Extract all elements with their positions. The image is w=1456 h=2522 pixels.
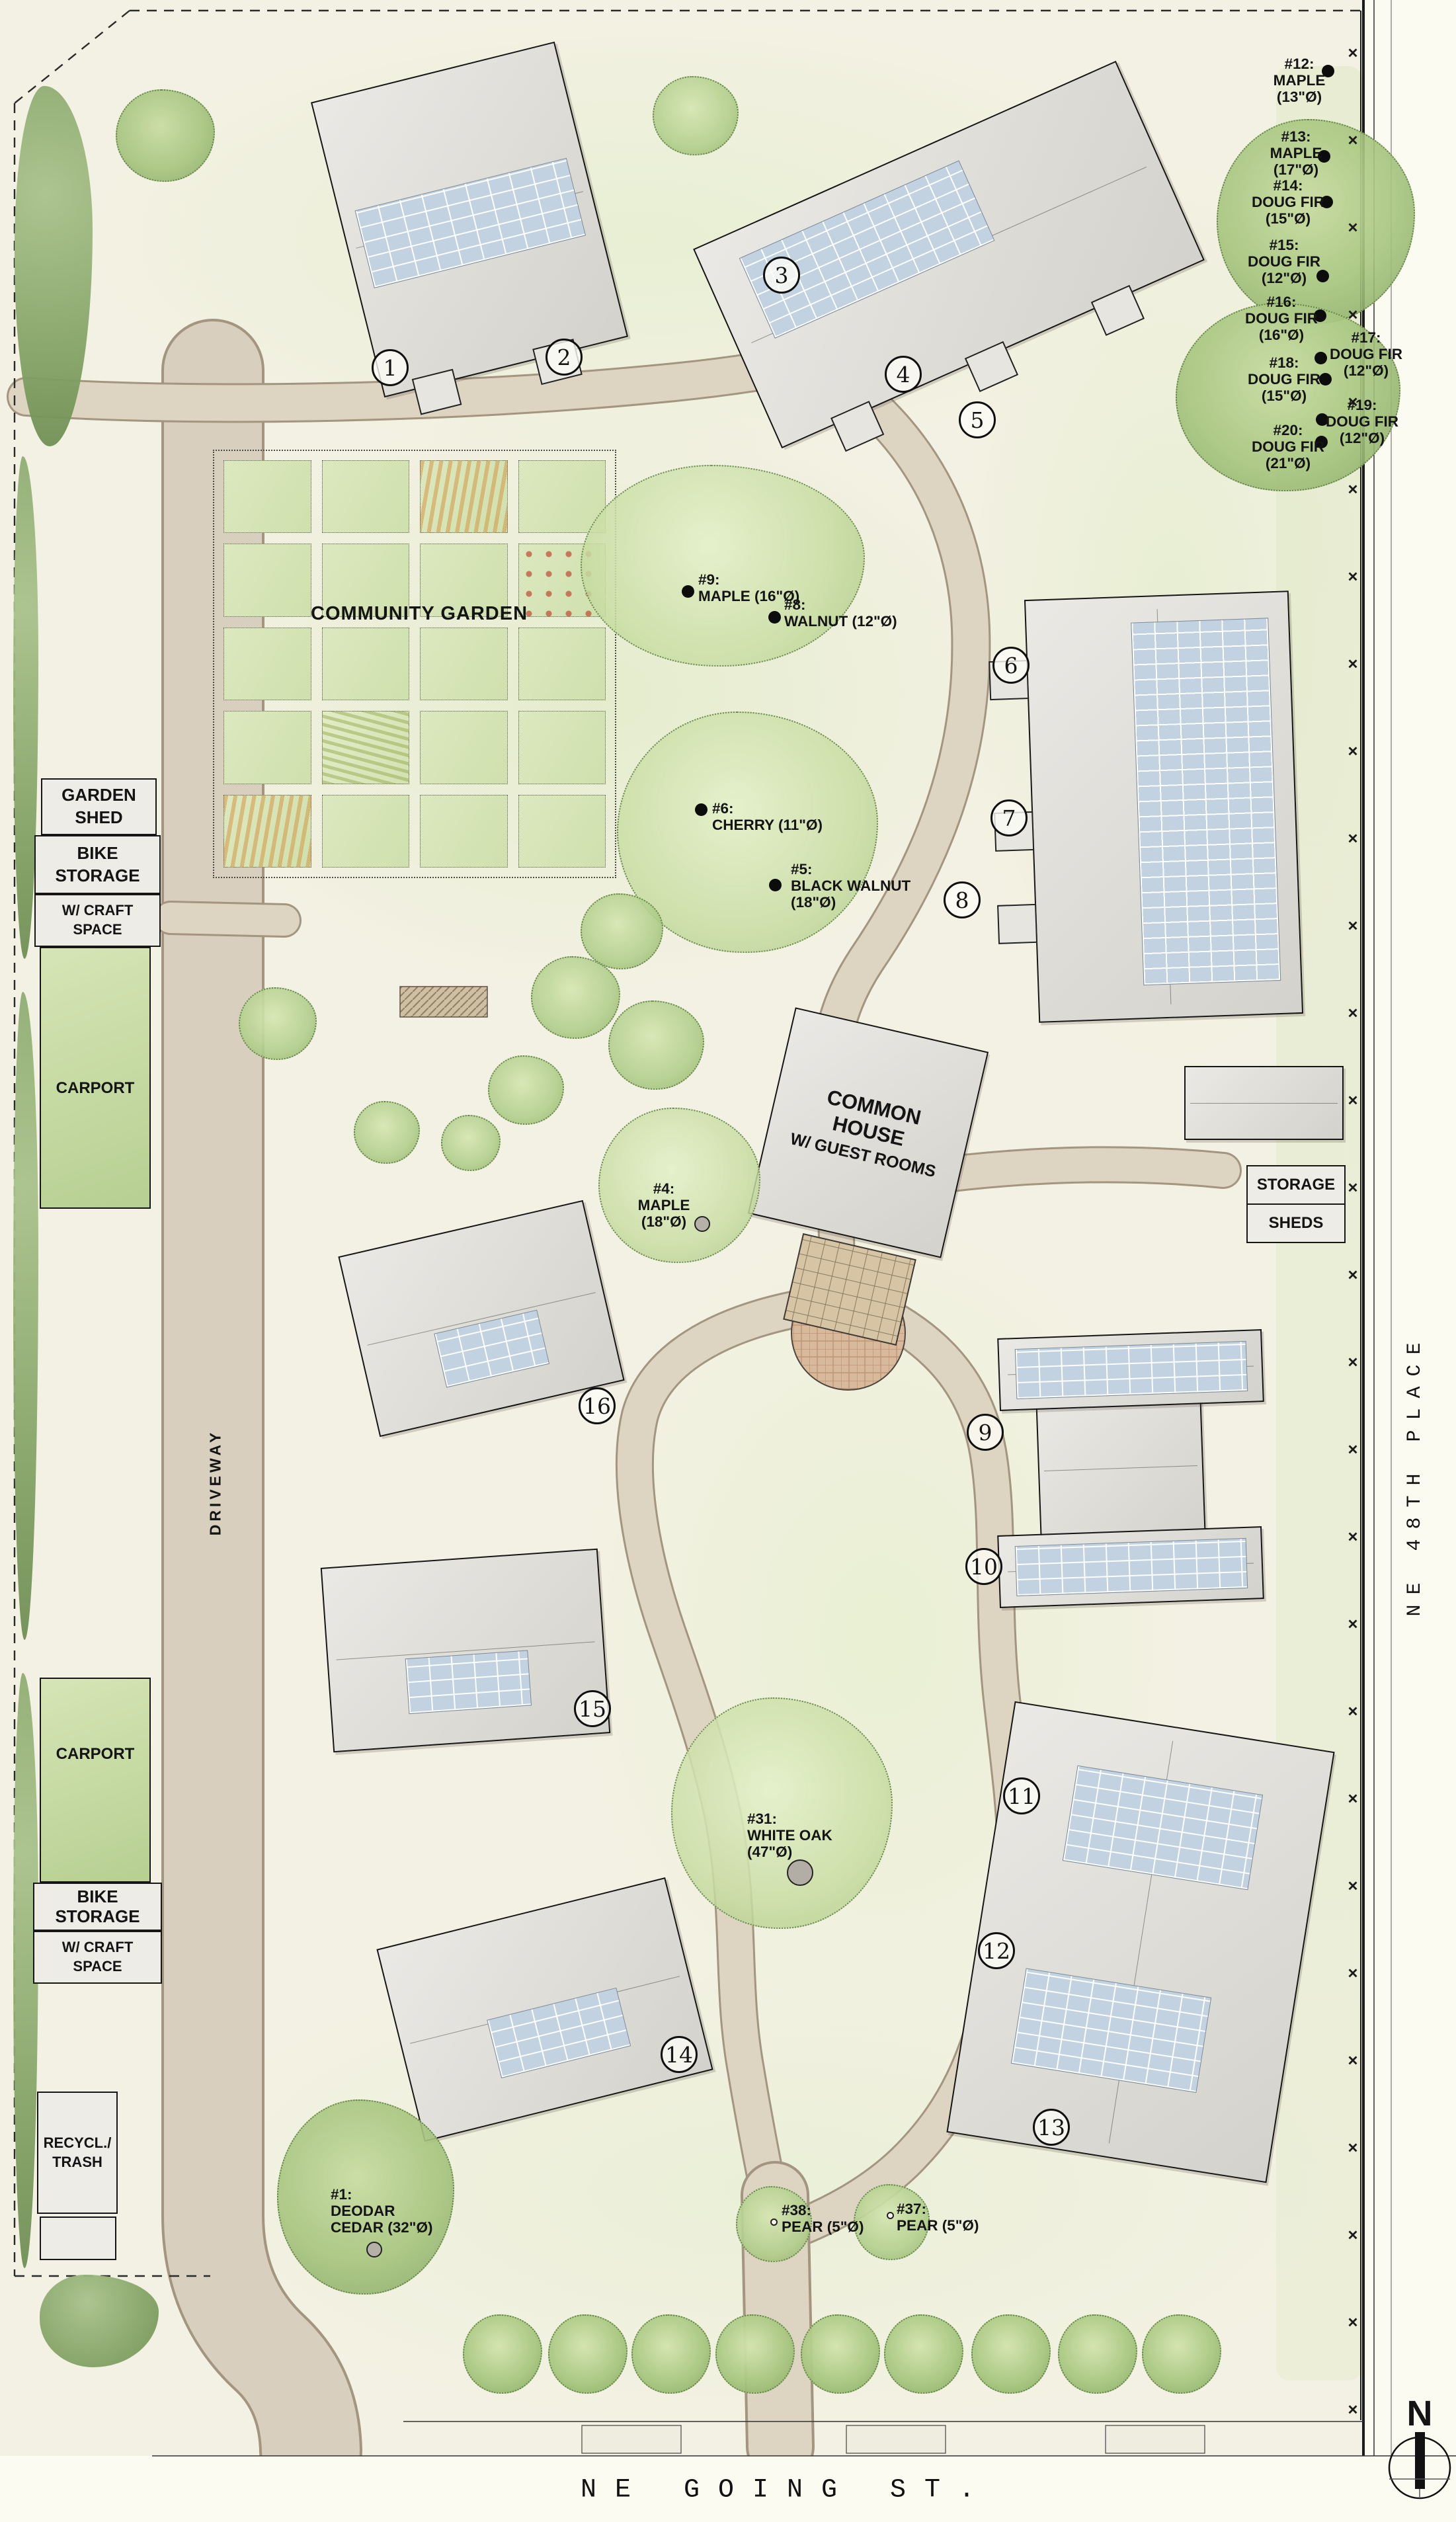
tree-label-6: #6:CHERRY (11"Ø) xyxy=(712,800,823,833)
tree-trunk-marker xyxy=(770,2218,778,2226)
tree-label-line: DOUG FIR xyxy=(1252,438,1324,455)
unit-1-badge: 1 xyxy=(372,349,409,386)
bike-storage-label: BIKE xyxy=(77,1887,118,1907)
bike-storage-label: BIKE xyxy=(77,842,118,865)
garden-plot xyxy=(518,628,606,700)
tree-label-line: PEAR (5"Ø) xyxy=(782,2218,864,2235)
solar-panels xyxy=(354,158,586,288)
tree-label-line: DOUG FIR xyxy=(1248,371,1320,387)
tree-label-line: #18: xyxy=(1248,354,1320,371)
solar-panels xyxy=(1015,1538,1248,1596)
tree-label-31: #31:WHITE OAK(47"Ø) xyxy=(747,1810,832,1861)
solar-panels xyxy=(434,1309,549,1388)
craft-space-lower: W/ CRAFT SPACE xyxy=(33,1931,162,1984)
garden-plot xyxy=(322,628,410,700)
tree-canopy xyxy=(354,1101,420,1164)
bike-storage-label: STORAGE xyxy=(55,865,140,887)
tree-label-line: MAPLE xyxy=(638,1197,690,1213)
fence-x-mark: × xyxy=(1348,2225,1357,2246)
fence-x-mark: × xyxy=(1348,1352,1357,1373)
building-unit-15 xyxy=(321,1549,611,1753)
unit-11-badge: 11 xyxy=(1003,1777,1040,1814)
garden-plot xyxy=(322,460,410,533)
garden-plot xyxy=(518,711,606,784)
tree-label-8: #8:WALNUT (12"Ø) xyxy=(784,596,897,630)
fence-x-mark: × xyxy=(1348,305,1357,325)
carport-label: CARPORT xyxy=(41,1078,149,1098)
common-house-label: COMMON HOUSE W/ GUEST ROOMS xyxy=(765,1074,972,1187)
tree-label-line: (12"Ø) xyxy=(1326,430,1398,446)
tree-label-line: (15"Ø) xyxy=(1252,210,1324,227)
bike-storage-lower: BIKE STORAGE xyxy=(33,1883,162,1931)
tree-trunk-marker xyxy=(682,585,694,598)
fence-x-mark: × xyxy=(1348,2051,1357,2071)
unit-4-badge: 4 xyxy=(885,356,922,393)
tree-label-line: #13: xyxy=(1270,128,1322,145)
tree-label-line: #14: xyxy=(1252,177,1324,194)
tree-canopy xyxy=(488,1055,564,1125)
tree-label-line: #17: xyxy=(1330,329,1402,346)
garden-plot xyxy=(223,544,311,616)
recycling-label: TRASH xyxy=(52,2153,102,2172)
storage-sheds: STORAGE SHEDS xyxy=(1246,1165,1346,1243)
garden-plot xyxy=(420,460,508,533)
driveway-label: DRIVEWAY xyxy=(207,1430,225,1536)
tree-label-line: MAPLE xyxy=(1274,72,1326,89)
garden-shed-label: GARDEN xyxy=(61,784,136,807)
tree-canopy xyxy=(581,893,663,969)
fence-x-mark: × xyxy=(1348,43,1357,63)
craft-space-label: SPACE xyxy=(73,920,122,940)
tree-label-14: #14:DOUG FIR(15"Ø) xyxy=(1252,177,1324,227)
tree-label-line: MAPLE xyxy=(1270,145,1322,161)
tree-canopy xyxy=(531,956,620,1039)
tree-label-line: (15"Ø) xyxy=(1248,387,1320,404)
tree-trunk-marker xyxy=(366,2242,382,2258)
north-arrow-label: N xyxy=(1407,2393,1433,2434)
fence-x-mark: × xyxy=(1348,218,1357,238)
tree-label-line: (47"Ø) xyxy=(747,1844,832,1860)
recycling-label: RECYCL./ xyxy=(44,2134,112,2153)
tree-canopy xyxy=(441,1115,501,1171)
fence-x-mark: × xyxy=(1348,654,1357,674)
solar-panels xyxy=(1131,618,1281,985)
tree-label-line: #12: xyxy=(1274,56,1326,72)
tree-trunk-marker xyxy=(695,803,708,816)
tree-label-4: #4:MAPLE(18"Ø) xyxy=(638,1180,690,1231)
tree-label-18: #18:DOUG FIR(15"Ø) xyxy=(1248,354,1320,405)
fence-x-mark: × xyxy=(1348,567,1357,587)
unit-9-badge: 9 xyxy=(967,1414,1004,1451)
storage-sheds-building xyxy=(1184,1066,1344,1140)
tree-label-line: #37: xyxy=(897,2201,979,2217)
garden-plot xyxy=(223,460,311,533)
tree-label-line: #5: xyxy=(791,861,910,877)
unit-10-badge: 10 xyxy=(965,1548,1002,1585)
unit-15-badge: 15 xyxy=(574,1690,611,1727)
recycling-trash: RECYCL./ TRASH xyxy=(37,2092,118,2214)
solar-panels xyxy=(405,1650,531,1714)
tree-label-line: #1: xyxy=(331,2186,432,2203)
community-garden-label: COMMUNITY GARDEN xyxy=(311,603,528,625)
tree-label-16: #16:DOUG FIR(16"Ø) xyxy=(1245,294,1318,344)
cohousing-site-plan: COMMUNITY GARDEN COMMON HOUSE W/ GUEST R… xyxy=(0,0,1456,2522)
tree-label-line: #9: xyxy=(698,571,799,588)
garden-plot xyxy=(322,795,410,868)
tree-label-15: #15:DOUG FIR(12"Ø) xyxy=(1248,237,1320,287)
craft-space-label: W/ CRAFT xyxy=(62,1938,134,1957)
tree-label-line: WHITE OAK xyxy=(747,1827,832,1844)
tree-label-5: #5:BLACK WALNUT(18"Ø) xyxy=(791,861,910,911)
craft-space-label: SPACE xyxy=(73,1957,122,1976)
street-name-ne-48th-place: NE 48TH PLACE xyxy=(1404,1332,1426,1616)
solar-panels xyxy=(1063,1765,1263,1890)
tree-label-line: BLACK WALNUT xyxy=(791,877,910,894)
garden-plot xyxy=(223,795,311,868)
tree-label-17: #17:DOUG FIR(12"Ø) xyxy=(1330,329,1402,380)
unit-12-badge: 12 xyxy=(978,1932,1015,1969)
fence-x-mark: × xyxy=(1348,1178,1357,1198)
fence-x-mark: × xyxy=(1348,1090,1357,1111)
tree-label-line: DOUG FIR xyxy=(1245,310,1318,327)
storage-sheds-label: STORAGE xyxy=(1248,1166,1344,1203)
garden-plot xyxy=(420,711,508,784)
tree-label-line: (18"Ø) xyxy=(638,1213,690,1230)
tree-label-line: (18"Ø) xyxy=(791,894,910,911)
fence-x-mark: × xyxy=(1348,479,1357,500)
tree-label-12: #12:MAPLE(13"Ø) xyxy=(1274,56,1326,106)
tree-label-line: #16: xyxy=(1245,294,1318,310)
fence-x-mark: × xyxy=(1348,1701,1357,1722)
tree-canopy xyxy=(608,1000,704,1090)
fence-x-mark: × xyxy=(1348,1440,1357,1460)
tree-label-line: DOUG FIR xyxy=(1252,194,1324,210)
garden-plot xyxy=(518,795,606,868)
tree-label-line: #38: xyxy=(782,2202,864,2218)
tree-label-line: (12"Ø) xyxy=(1330,362,1402,379)
tree-label-line: DOUG FIR xyxy=(1330,346,1402,362)
unit-5-badge: 5 xyxy=(959,401,996,438)
fence-x-mark: × xyxy=(1348,130,1357,151)
building-units-6-7-8 xyxy=(1024,590,1303,1023)
unit-16-badge: 16 xyxy=(579,1387,616,1424)
tree-label-line: (13"Ø) xyxy=(1274,89,1326,105)
tree-trunk-marker xyxy=(769,879,782,891)
fence-x-mark: × xyxy=(1348,2400,1357,2420)
tree-label-13: #13:MAPLE(17"Ø) xyxy=(1270,128,1322,179)
tree-trunk-marker xyxy=(768,611,781,624)
fence-x-mark: × xyxy=(1348,2312,1357,2333)
fence-x-mark: × xyxy=(1348,916,1357,936)
garden-plot xyxy=(223,628,311,700)
fence-x-mark: × xyxy=(1348,1963,1357,1984)
garden-shed-label: SHED xyxy=(75,807,122,829)
tree-label-line: #15: xyxy=(1248,237,1320,253)
unit-14-badge: 14 xyxy=(661,2036,698,2073)
tree-label-line: CEDAR (32"Ø) xyxy=(331,2219,432,2236)
unit-8-badge: 8 xyxy=(944,881,981,918)
utility-box xyxy=(40,2217,116,2260)
tree-label-line: PEAR (5"Ø) xyxy=(897,2217,979,2234)
fence-x-mark: × xyxy=(1348,741,1357,762)
fence-x-mark: × xyxy=(1348,1003,1357,1024)
tree-label-20: #20:DOUG FIR(21"Ø) xyxy=(1252,422,1324,472)
solar-panels xyxy=(1011,1968,1211,2093)
carport-lower: CARPORT xyxy=(40,1678,151,1883)
unit-6-badge: 6 xyxy=(992,647,1030,684)
unit-13-badge: 13 xyxy=(1033,2109,1070,2146)
garden-plot xyxy=(322,711,410,784)
porch xyxy=(997,904,1037,944)
garden-plot xyxy=(420,795,508,868)
tree-label-line: WALNUT (12"Ø) xyxy=(784,613,897,630)
garden-shed: GARDEN SHED xyxy=(41,778,157,835)
solar-panels xyxy=(1015,1341,1248,1399)
building-units-9-10-south-wing xyxy=(997,1526,1264,1608)
bike-storage-upper: BIKE STORAGE xyxy=(34,835,161,894)
carport-upper: CARPORT xyxy=(40,947,151,1209)
tree-label-line: CHERRY (11"Ø) xyxy=(712,817,823,833)
craft-space-label: W/ CRAFT xyxy=(62,901,134,920)
fence-x-mark: × xyxy=(1348,1614,1357,1635)
tree-label-line: #31: xyxy=(747,1810,832,1827)
building-units-9-10-north-wing xyxy=(997,1329,1264,1411)
tree-trunk-marker xyxy=(787,1859,813,1886)
carport-label: CARPORT xyxy=(41,1744,149,1764)
tree-label-19: #19:DOUG FIR(12"Ø) xyxy=(1326,397,1398,447)
tree-trunk-marker xyxy=(694,1216,710,1232)
tree-label-line: #19: xyxy=(1326,397,1398,413)
tree-label-line: #6: xyxy=(712,800,823,817)
solar-panels xyxy=(487,1988,631,2078)
tree-label-line: DOUG FIR xyxy=(1326,413,1398,430)
garden-plot xyxy=(223,711,311,784)
tree-label-line: (12"Ø) xyxy=(1248,270,1320,286)
fence-x-mark: × xyxy=(1348,1527,1357,1547)
tree-label-38: #38:PEAR (5"Ø) xyxy=(782,2202,864,2235)
storage-sheds-label: SHEDS xyxy=(1248,1203,1344,1242)
tree-label-37: #37:PEAR (5"Ø) xyxy=(897,2201,979,2234)
tree-label-line: (17"Ø) xyxy=(1270,161,1322,178)
street-name-ne-going-st: NE GOING ST. xyxy=(581,2476,993,2505)
tree-label-line: #8: xyxy=(784,596,897,613)
unit-3-badge: 3 xyxy=(763,257,800,294)
bike-storage-label: STORAGE xyxy=(55,1907,140,1927)
unit-7-badge: 7 xyxy=(991,799,1028,836)
tree-label-line: (21"Ø) xyxy=(1252,455,1324,471)
fence-x-mark: × xyxy=(1348,1265,1357,1285)
tree-label-1: #1:DEODARCEDAR (32"Ø) xyxy=(331,2186,432,2236)
craft-space-upper: W/ CRAFT SPACE xyxy=(34,894,161,947)
fence-x-mark: × xyxy=(1348,2138,1357,2158)
tree-label-line: DOUG FIR xyxy=(1248,253,1320,270)
fence-x-mark: × xyxy=(1348,1876,1357,1896)
tree-trunk-marker xyxy=(887,2212,894,2219)
tree-label-line: #20: xyxy=(1252,422,1324,438)
garden-plot xyxy=(420,628,508,700)
tree-label-line: #4: xyxy=(638,1180,690,1197)
fence-x-mark: × xyxy=(1348,1789,1357,1809)
community-garden xyxy=(213,450,616,878)
tree-label-line: DEODAR xyxy=(331,2203,432,2219)
tree-label-line: (16"Ø) xyxy=(1245,327,1318,343)
unit-2-badge: 2 xyxy=(546,339,583,376)
fence-x-mark: × xyxy=(1348,829,1357,849)
